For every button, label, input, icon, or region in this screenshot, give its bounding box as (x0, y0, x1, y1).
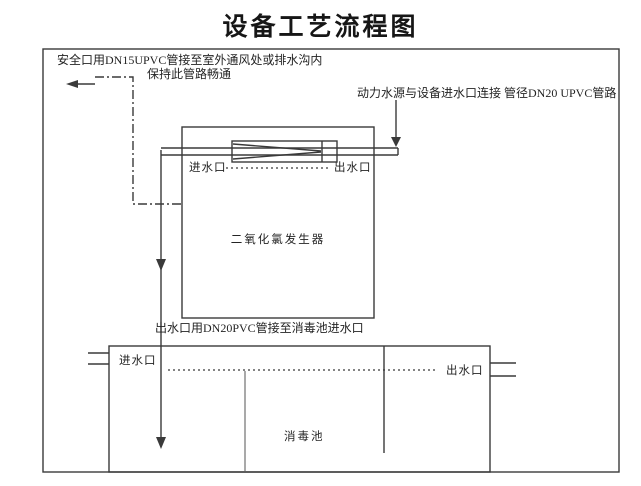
safety-vent-line (95, 77, 182, 204)
generator-label: 二氧化氯发生器 (182, 231, 374, 247)
safety-annotation-line2: 保持此管路畅通 (147, 68, 231, 81)
page-title: 设备工艺流程图 (0, 7, 641, 43)
pool-outlet-label: 出水口 (446, 365, 484, 378)
flow-arrow-down-icon (156, 259, 166, 271)
arrow-left-icon (66, 80, 78, 88)
flow-arrow-down-icon (156, 437, 166, 449)
pool-box (109, 346, 490, 472)
generator-inlet-label: 进水口 (189, 162, 227, 175)
safety-annotation-line1: 安全口用DN15UPVC管接至室外通风处或排水沟内 (57, 54, 322, 67)
diagram-border (43, 49, 619, 472)
process-flow-diagram: 设备工艺流程图 安全口用DN15UPVC管接至室外通风处或排水沟内 保持此管路畅… (0, 0, 641, 486)
arrow-down-icon (391, 137, 401, 147)
pool-label: 消毒池 (284, 431, 325, 444)
ejector-body (232, 141, 337, 162)
outlet-pipe-annotation: 出水口用DN20PVC管接至消毒池进水口 (155, 322, 364, 335)
pool-inlet-label: 进水口 (119, 355, 157, 368)
supply-annotation: 动力水源与设备进水口连接 管径DN20 UPVC管路 (357, 87, 616, 100)
generator-outlet-label: 出水口 (334, 162, 372, 175)
